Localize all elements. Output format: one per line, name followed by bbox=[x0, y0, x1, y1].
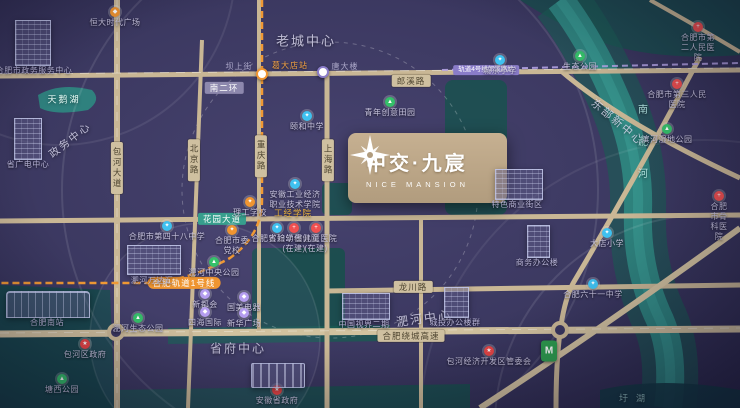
road-badge: 郎溪路 bbox=[392, 75, 431, 87]
mall-icon: ◆ bbox=[200, 307, 210, 317]
park-icon: ▲ bbox=[209, 257, 219, 267]
building-complex bbox=[495, 169, 543, 200]
metro-station-icon bbox=[317, 66, 329, 78]
poi-label: 合肥市骨科医院 bbox=[709, 202, 730, 242]
hospital-icon: + bbox=[311, 223, 321, 233]
poi-label: 淝河生态公园 bbox=[113, 324, 164, 334]
hospital-icon: + bbox=[672, 79, 682, 89]
gov-icon: ★ bbox=[80, 339, 90, 349]
building-tower bbox=[14, 118, 42, 160]
hospital-icon: + bbox=[289, 223, 299, 233]
road-badge: 坝上街 bbox=[221, 61, 258, 73]
building-mall bbox=[127, 245, 181, 275]
road-badge: 重庆路 bbox=[255, 135, 267, 177]
poi-label: 淝河中央公园 bbox=[189, 268, 240, 278]
poi-label: 生态公园 bbox=[563, 62, 597, 72]
poi-label: 合肥市第二人民医院 bbox=[677, 33, 719, 63]
poi-label: 省儿童医院 (在建) bbox=[295, 234, 338, 254]
road-badge: 南二环 bbox=[205, 82, 244, 94]
metro-logo-icon: M bbox=[541, 341, 557, 362]
area-label: 天鹅湖 bbox=[47, 93, 80, 106]
road-badge: 包河大道 bbox=[111, 142, 123, 194]
edu2-icon: ✦ bbox=[227, 225, 237, 235]
building-label: 商务办公楼 bbox=[516, 258, 559, 268]
poi-label: 合肥市委 党校 bbox=[215, 236, 249, 256]
location-map: 中交·九宸 NICE MANSION 老城中心政务中心东部新中心淝河中心省府中心… bbox=[0, 0, 740, 408]
map-base-art bbox=[0, 0, 740, 408]
poi-label: 合肥市第三人民医院 bbox=[646, 90, 709, 110]
poi-label: 恒大时代广场 bbox=[90, 18, 141, 28]
gov-icon: ★ bbox=[484, 346, 494, 356]
building-label: 淝河万达汇 bbox=[131, 276, 174, 286]
building-label: 城投办公楼群 bbox=[430, 318, 481, 328]
poi-label: 颐和中学 bbox=[290, 122, 324, 132]
building-complex bbox=[342, 293, 390, 320]
mall-icon: ◆ bbox=[239, 308, 249, 318]
building-gov bbox=[251, 363, 305, 388]
poi-label: 大店小学 bbox=[590, 239, 624, 249]
poi-label: 安徽省政府 bbox=[256, 396, 299, 406]
project-name-en: NICE MANSION bbox=[366, 180, 469, 189]
building-label: 合肥南站 bbox=[30, 318, 64, 328]
road-badge: 葛大店站 bbox=[267, 60, 313, 72]
mall-icon: ◆ bbox=[200, 289, 210, 299]
building-label: 中国视界二期 bbox=[339, 320, 390, 330]
park-icon: ▲ bbox=[133, 313, 143, 323]
poi-label: 包河区政府 bbox=[64, 350, 107, 360]
road-badge: 北京路 bbox=[188, 139, 200, 181]
school-icon: ✦ bbox=[162, 221, 172, 231]
building-twin bbox=[15, 20, 51, 66]
poi-label: 合肥六十一中学 bbox=[563, 290, 623, 300]
poi-label: 合肥市第四十八中学 bbox=[129, 232, 206, 242]
hospital-icon: + bbox=[714, 191, 724, 201]
park-icon: ▲ bbox=[575, 51, 585, 61]
school-icon: ✦ bbox=[290, 179, 300, 189]
building-tower bbox=[444, 287, 469, 318]
building-station bbox=[6, 291, 90, 318]
poi-label: 城东小学 bbox=[483, 66, 517, 76]
road-badge: 龙川路 bbox=[394, 281, 433, 293]
poi-label: 四海国际 bbox=[188, 318, 222, 328]
building-label: 合肥市政务服务中心 bbox=[0, 66, 72, 76]
road-badge: 上海路 bbox=[322, 139, 334, 181]
hospital-icon: + bbox=[693, 22, 703, 32]
area-label: 省府中心 bbox=[210, 340, 266, 357]
school-icon: ✦ bbox=[495, 55, 505, 65]
building-tower bbox=[527, 225, 550, 258]
area-label: 老城中心 bbox=[276, 31, 336, 50]
poi-label: 滨河湿地公园 bbox=[642, 135, 693, 145]
school-icon: ✦ bbox=[588, 279, 598, 289]
area-label: 圩湖 bbox=[619, 392, 653, 405]
school-icon: ✦ bbox=[302, 111, 312, 121]
poi-label: 安徽工业经济 职业技术学院 bbox=[270, 190, 321, 210]
poi-label: 青年创意田园 bbox=[365, 108, 416, 118]
poi-label: 塘西公园 bbox=[45, 385, 79, 395]
poi-label: 包河经济开发区管委会 bbox=[447, 357, 532, 367]
road-badge: 合肥绕城高速 bbox=[377, 330, 444, 342]
mall2-icon: ◆ bbox=[110, 7, 120, 17]
park-icon: ▲ bbox=[385, 97, 395, 107]
building-label: 省广电中心 bbox=[7, 160, 50, 170]
compass-star-icon bbox=[348, 133, 392, 177]
park-icon: ▲ bbox=[662, 124, 672, 134]
building-label: 特色商业街区 bbox=[492, 200, 543, 210]
school-icon: ✦ bbox=[602, 228, 612, 238]
mall-icon: ◆ bbox=[239, 292, 249, 302]
school-icon: ✦ bbox=[272, 223, 282, 233]
poi-label: 新华广场 bbox=[227, 319, 261, 329]
poi-label: 理工学校 bbox=[233, 208, 267, 218]
project-logo: 中交·九宸 NICE MANSION bbox=[348, 133, 507, 203]
edu2-icon: ✦ bbox=[245, 197, 255, 207]
road-badge: 唐大楼 bbox=[327, 61, 364, 73]
park-icon: ▲ bbox=[57, 374, 67, 384]
area-label: 南淝河 bbox=[634, 104, 649, 200]
metro-station-icon bbox=[256, 68, 268, 80]
